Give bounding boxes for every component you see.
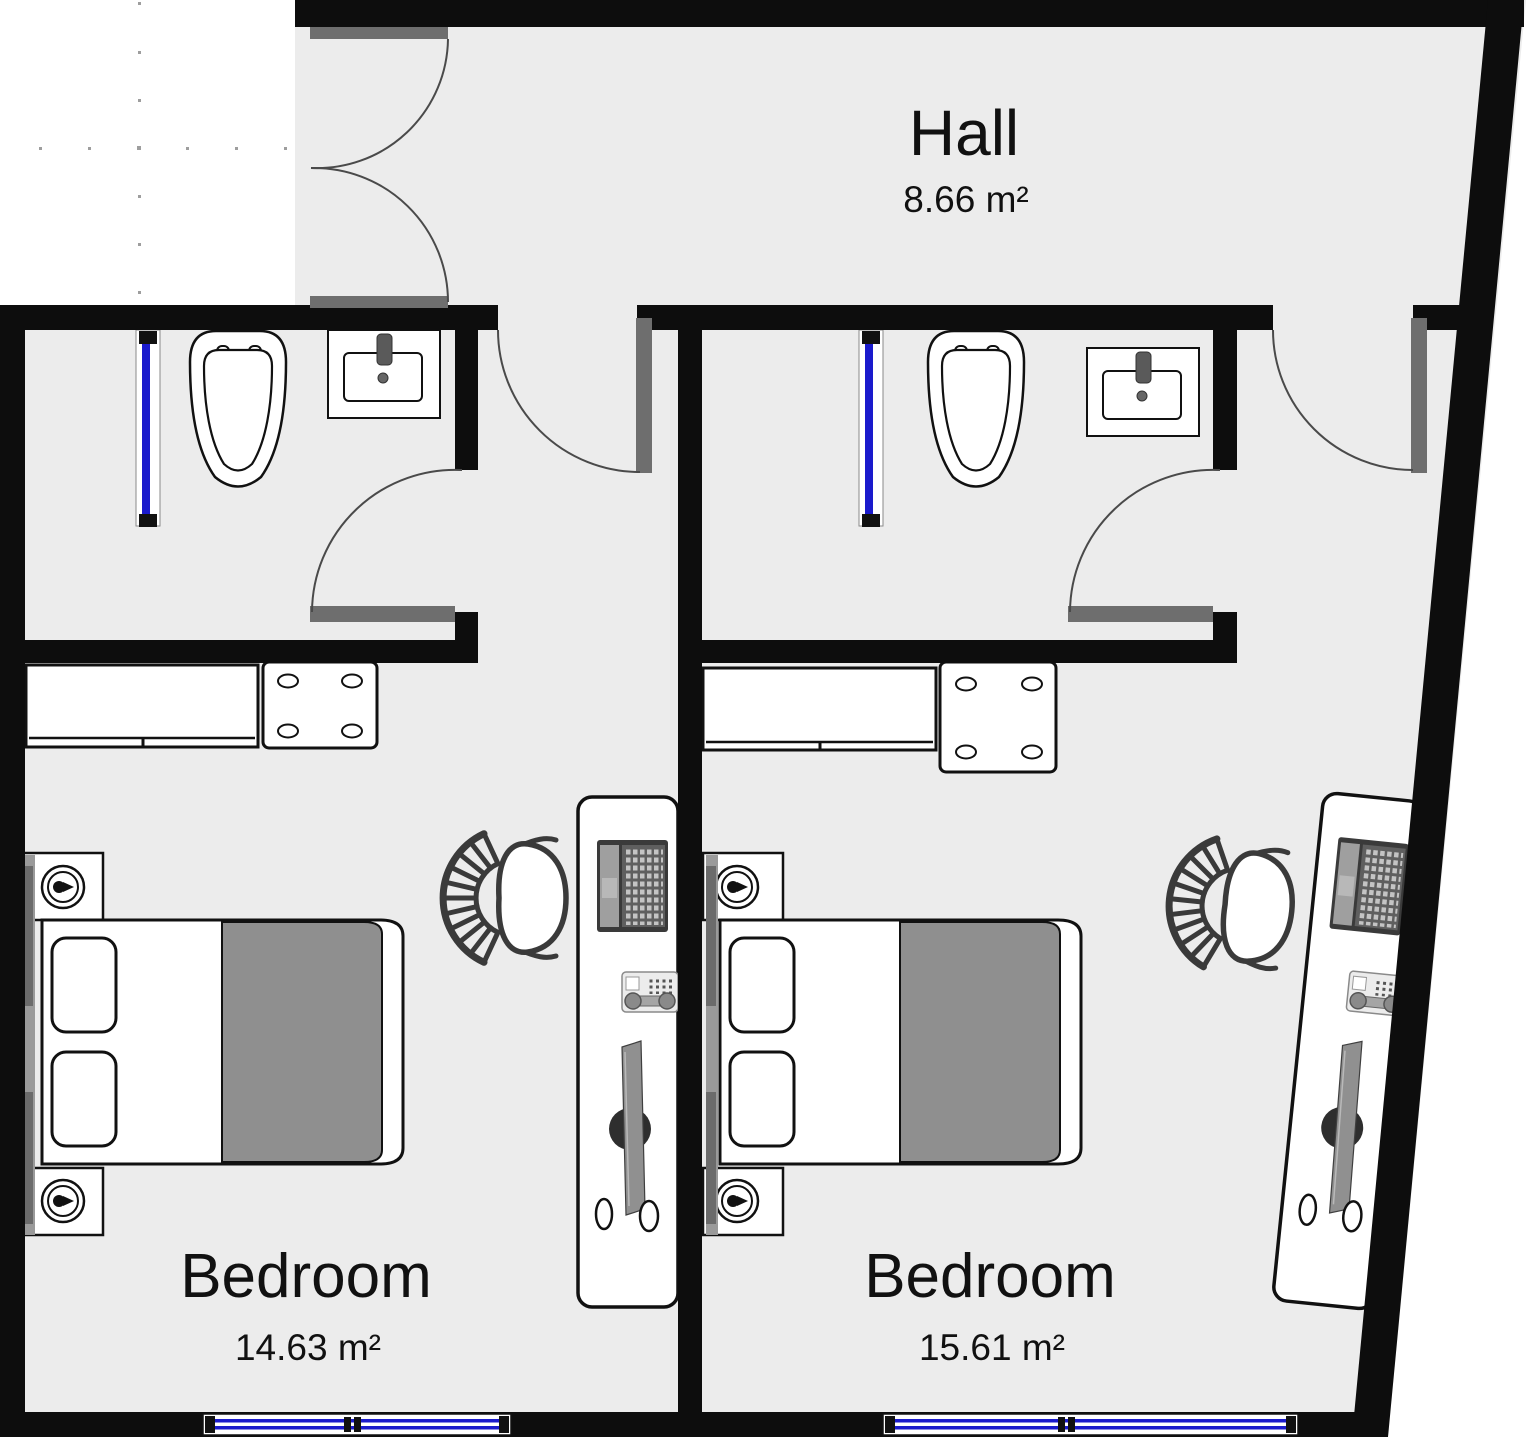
room-label-hall: Hall 8.66 m² [903,97,1028,220]
grid-dots [39,2,287,294]
bedroom-right-name: Bedroom [864,1242,1116,1311]
double-bed[interactable] [720,920,1081,1164]
dresser[interactable] [263,662,377,748]
shower-glass-panel[interactable] [859,330,883,527]
shower-glass-panel[interactable] [136,330,160,527]
sink-vanity[interactable] [1087,348,1199,436]
dresser[interactable] [940,662,1056,772]
floor-plan: Hall 8.66 m² Bedroom 14.63 m² Bedroom 15… [0,0,1529,1437]
bedroom-left-name: Bedroom [180,1242,432,1311]
double-bed[interactable] [42,920,403,1164]
bedroom-left-area: 14.63 m² [235,1327,381,1368]
bedroom-right-area: 15.61 m² [919,1327,1065,1368]
desk[interactable] [578,797,678,1307]
floor-plan-canvas: Hall 8.66 m² Bedroom 14.63 m² Bedroom 15… [0,0,1529,1437]
wardrobe[interactable] [703,668,936,750]
desk-chair[interactable] [443,834,566,963]
hall-area: 8.66 m² [903,179,1028,220]
window[interactable] [203,1414,511,1435]
window[interactable] [883,1414,1298,1435]
hall-name: Hall [909,97,1019,169]
sink-vanity[interactable] [328,330,440,418]
wardrobe[interactable] [26,665,258,747]
